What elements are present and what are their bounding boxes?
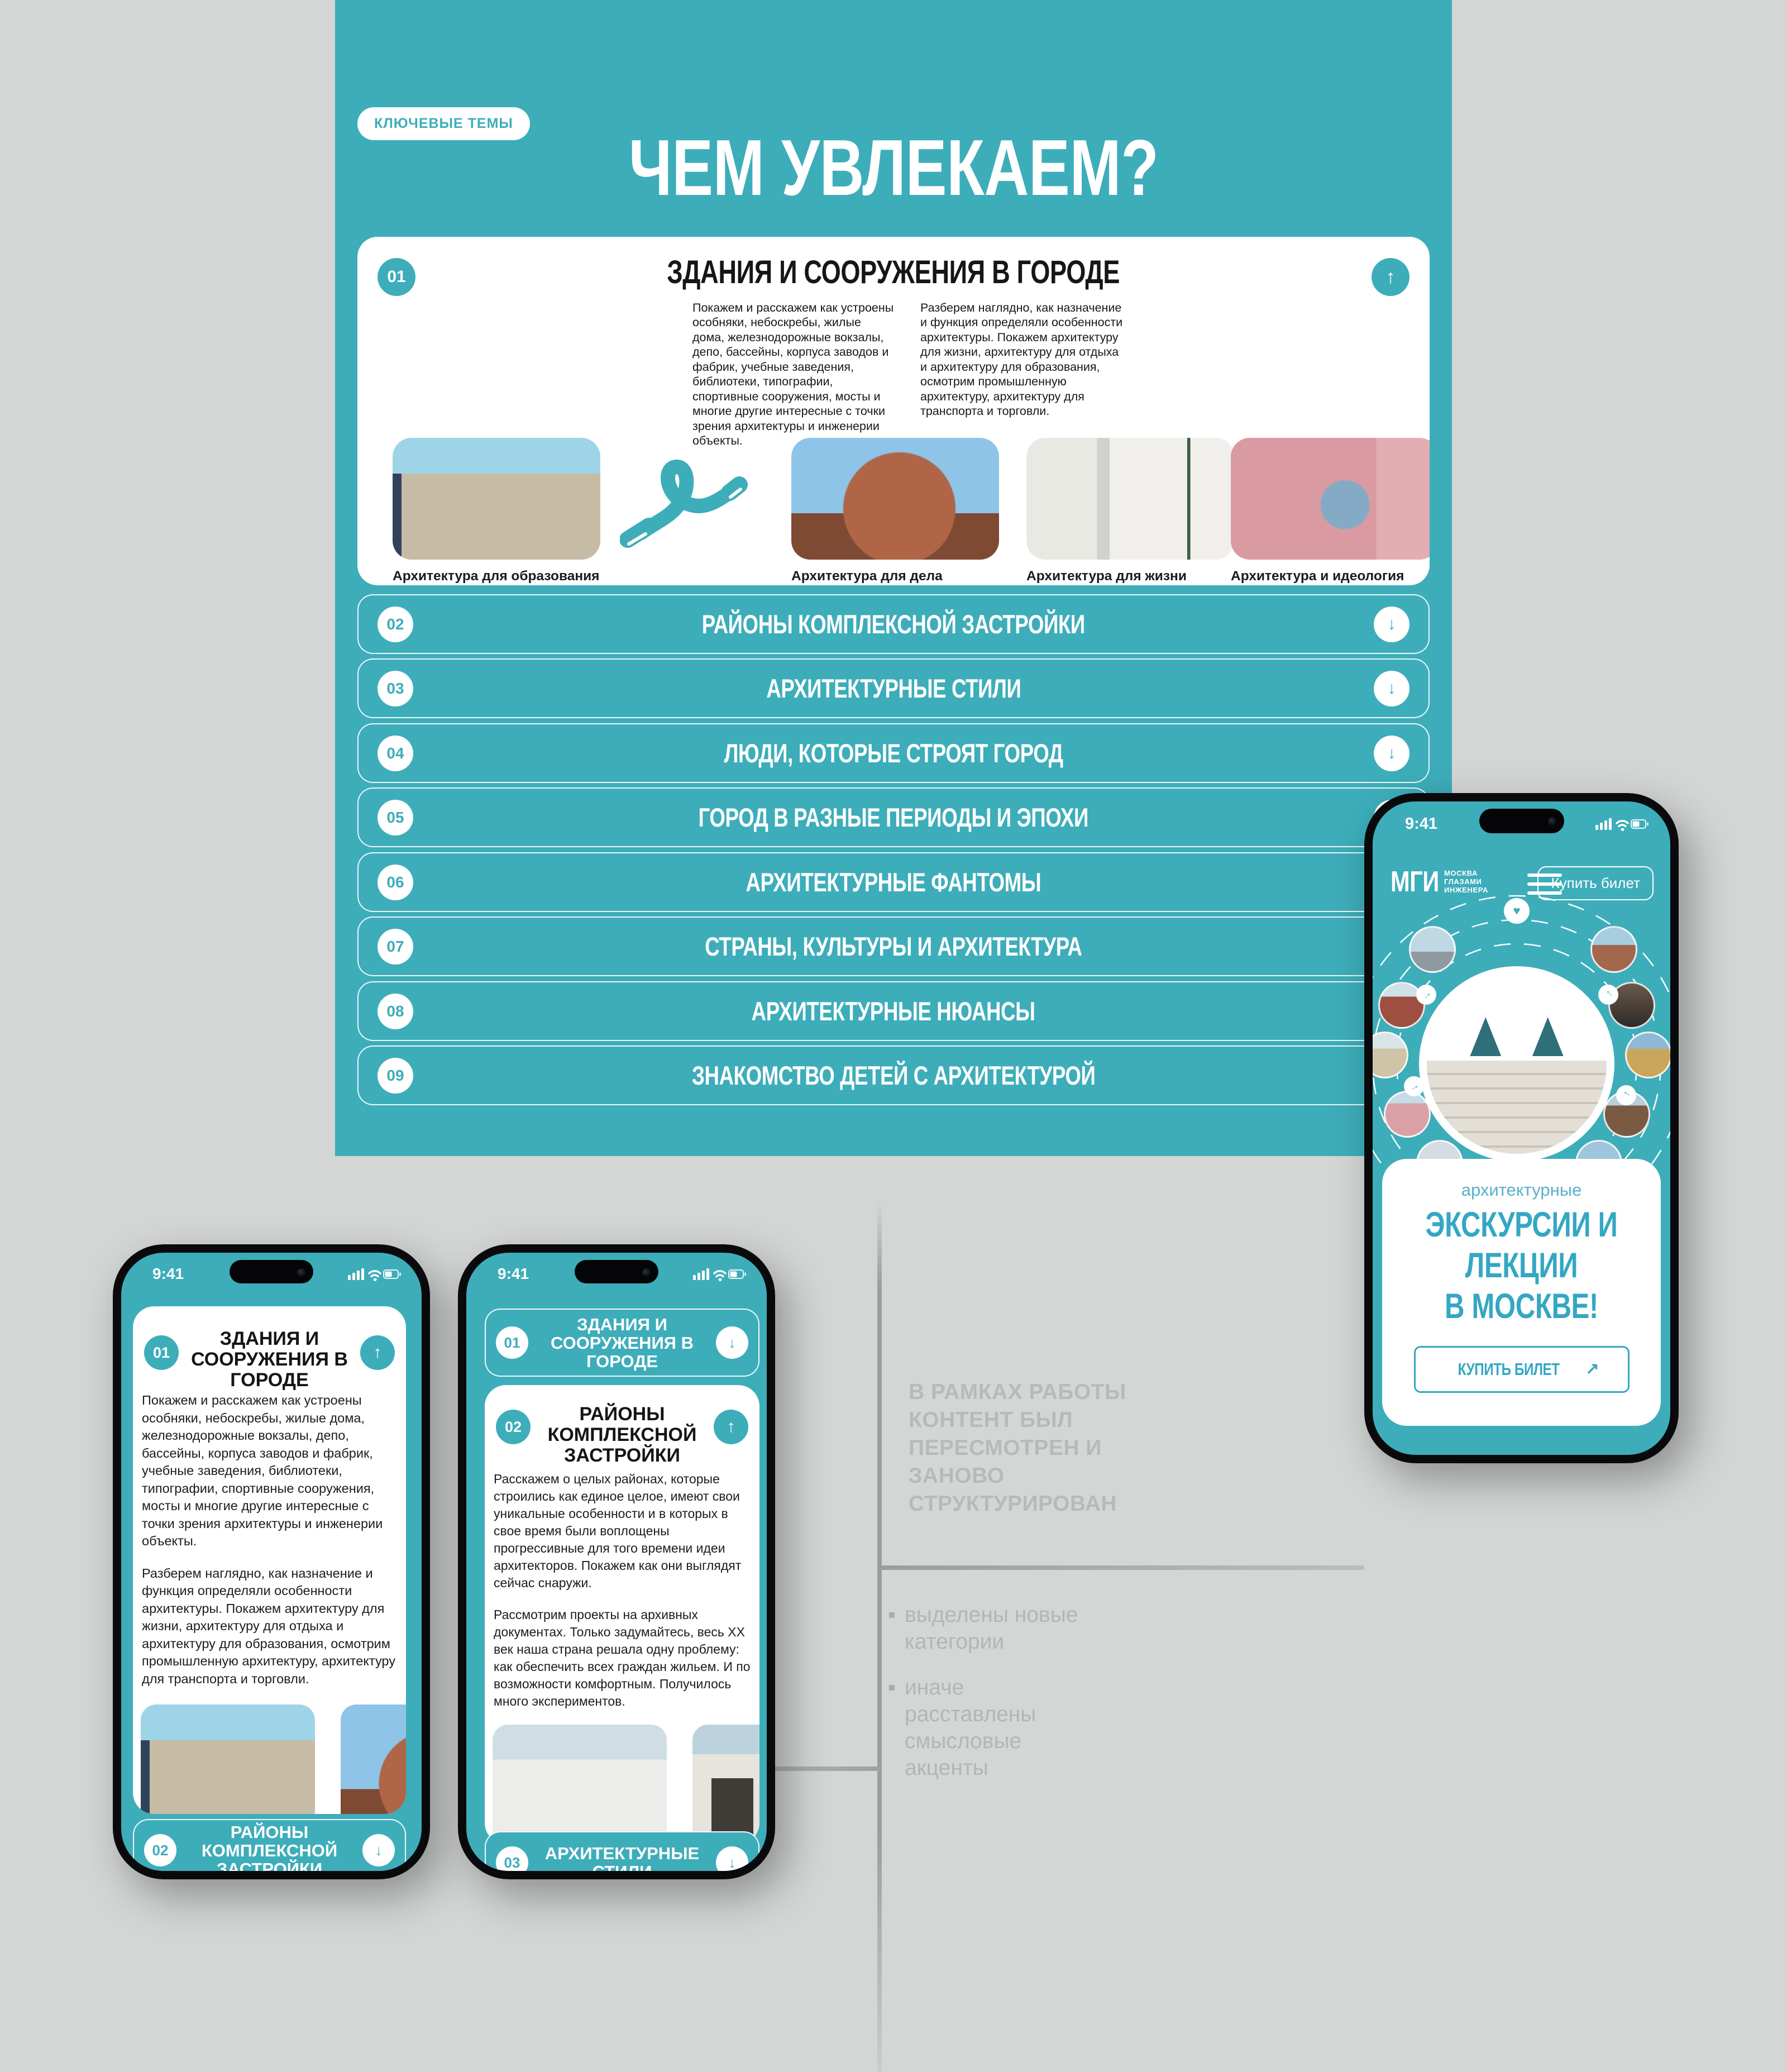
photo-card: Архитектура для дела ХЛЕБОЗАВОД №9: [791, 438, 999, 585]
row-title: ЛЮДИ, КОТОРЫЕ СТРОЯТ ГОРОД: [724, 738, 1063, 768]
hero-kicker: архитектурные: [1382, 1180, 1661, 1200]
lenin-library-photo: [393, 438, 600, 560]
bread-factory-photo: [341, 1705, 406, 1814]
camera-icon: [642, 1268, 651, 1277]
phone-screen: 9:41 01 ЗДАНИЯ И СООРУЖЕНИЯ В ГОРОДЕ ↑ П…: [121, 1253, 422, 1871]
row-number-badge: 08: [378, 994, 413, 1029]
row-title: ГОРОД В РАЗНЫЕ ПЕРИОДЫ И ЭПОХИ: [699, 802, 1088, 833]
row-number-badge: 07: [378, 929, 413, 965]
accordion-row-08[interactable]: 08 АРХИТЕКТУРНЫЕ НЮАНСЫ ↓: [357, 981, 1430, 1041]
annotation-bullet: иначе расставлены смысловые акценты: [889, 1674, 1124, 1782]
hero-card: архитектурные ЭКСКУРСИИ И ЛЕКЦИИ В МОСКВ…: [1382, 1159, 1661, 1426]
heart-pin-icon: ♥: [1504, 898, 1530, 924]
topic-number-badge: 02: [496, 1410, 531, 1444]
topic-paragraph: Расскажем о целых районах, которые строи…: [494, 1471, 751, 1592]
row-title: РАЙОНЫ КОМПЛЕКСНОЙ ЗАСТРОЙКИ: [702, 609, 1085, 639]
hero-headline: ЭКСКУРСИИ И ЛЕКЦИИ В МОСКВЕ!: [1382, 1205, 1661, 1327]
row-title: ЗНАКОМСТВО ДЕТЕЙ С АРХИТЕКТУРОЙ: [692, 1060, 1096, 1091]
key-topics-section: КЛЮЧЕВЫЕ ТЕМЫ ЧЕМ УВЛЕКАЕМ? Мы показывае…: [335, 0, 1452, 1156]
mobile-topic-card-01: 01 ЗДАНИЯ И СООРУЖЕНИЯ В ГОРОДЕ ↑ Покаже…: [133, 1306, 406, 1814]
connector-branch-left: [757, 1767, 882, 1771]
topic-card-01: 01 ЗДАНИЯ И СООРУЖЕНИЯ В ГОРОДЕ ↑ Покаже…: [357, 237, 1430, 585]
orbit-photo-yellow-house: [1625, 1032, 1670, 1078]
gum-building-photo: [1427, 974, 1607, 1154]
status-icons: [1595, 816, 1649, 832]
battery-icon: [384, 1270, 401, 1278]
zuev-club-photo: [1231, 438, 1430, 560]
row-number-badge: 01: [496, 1326, 528, 1359]
photo-row: Архитектура для образования БИБЛИОТЕКА И…: [141, 1705, 406, 1814]
topic-number-badge: 01: [144, 1335, 179, 1370]
photo-row: Рабочий поселок “Усачевка” м.СПОРТИВНАЯ …: [493, 1725, 759, 1844]
dynamic-island: [1479, 809, 1564, 833]
accordion-row-07[interactable]: 07 СТРАНЫ, КУЛЬТУРЫ И АРХИТЕКТУРА ↓: [357, 916, 1430, 976]
expand-arrow-icon[interactable]: ↓: [1374, 607, 1409, 642]
topic-photo-row: Архитектура для образования БИБЛИОТЕКА И…: [357, 429, 1430, 585]
topic-paragraph: Разберем наглядно, как назначение и функ…: [142, 1565, 397, 1688]
dynamic-island: [230, 1260, 313, 1283]
accordion-row-03-mobile[interactable]: 03 АРХИТЕКТУРНЫЕ СТИЛИ ↓: [485, 1831, 759, 1871]
collapse-arrow-button[interactable]: ↑: [714, 1410, 748, 1444]
photo-card: Архитектура и идеология ДОМ КУЛЬТУРЫ ИМ.…: [1231, 438, 1430, 585]
accordion-row-02-mobile[interactable]: 02 РАЙОНЫ КОМПЛЕКСНОЙ ЗАСТРОЙКИ ↓: [133, 1819, 406, 1871]
dangauerovka-photo: [692, 1725, 759, 1844]
mobile-topic-card-02: 02 РАЙОНЫ КОМПЛЕКСНОЙ ЗАСТРОЙКИ ↑ Расска…: [485, 1385, 759, 1844]
row-number-badge: 05: [378, 800, 413, 836]
hero-circle: [1419, 966, 1614, 1162]
connector-branch-right: [880, 1565, 1364, 1570]
photo-card: Рабочий поселок “Усачевка” м.СПОРТИВНАЯ: [493, 1725, 667, 1844]
camera-icon: [1548, 817, 1556, 825]
bread-factory-photo: [791, 438, 999, 560]
row-number-badge: 04: [378, 736, 413, 771]
accordion-row-05[interactable]: 05 ГОРОД В РАЗНЫЕ ПЕРИОДЫ И ЭПОХИ ↓: [357, 787, 1430, 847]
status-time: 9:41: [498, 1265, 529, 1283]
wifi-icon: [714, 1271, 725, 1280]
collapse-arrow-button[interactable]: ↑: [360, 1335, 395, 1370]
card-header: 01 ЗДАНИЯ И СООРУЖЕНИЯ В ГОРОДЕ ↑: [133, 1306, 406, 1391]
expand-arrow-icon[interactable]: ↓: [362, 1834, 395, 1866]
phone-mockup-topic01: 9:41 01 ЗДАНИЯ И СООРУЖЕНИЯ В ГОРОДЕ ↑ П…: [113, 1244, 430, 1879]
battery-icon: [1631, 820, 1649, 828]
signal-icon: [693, 1268, 709, 1280]
status-time: 9:41: [1405, 815, 1437, 833]
accordion-row-01-mobile[interactable]: 01 ЗДАНИЯ И СООРУЖЕНИЯ В ГОРОДЕ ↓: [485, 1309, 759, 1377]
accordion-row-06[interactable]: 06 АРХИТЕКТУРНЫЕ ФАНТОМЫ ↓: [357, 852, 1430, 912]
photo-caption: Архитектура для жизни: [1026, 569, 1234, 584]
arrow-ne-icon: ↗: [1585, 1360, 1599, 1379]
topic-text-col1: Покажем и расскажем как устроены особняк…: [692, 300, 896, 448]
annotation-bullets: выделены новые категории иначе расставле…: [889, 1602, 1124, 1801]
row-number-badge: 03: [378, 671, 413, 706]
orbit-photo-factory: [1409, 926, 1456, 973]
accordion-row-09[interactable]: 09 ЗНАКОМСТВО ДЕТЕЙ С АРХИТЕКТУРОЙ ↓: [357, 1045, 1430, 1105]
row-title: АРХИТЕКТУРНЫЕ СТИЛИ: [766, 673, 1021, 704]
signal-icon: [1595, 818, 1612, 830]
orbit-photo-pink-building: [1384, 1091, 1431, 1138]
phone-screen: 9:41 МГИ МОСКВА ГЛАЗАМИ ИНЖЕНЕРА Купить …: [1373, 801, 1670, 1455]
annotation-bullet: выделены новые категории: [889, 1602, 1124, 1655]
row-title: АРХИТЕКТУРНЫЕ ФАНТОМЫ: [746, 867, 1041, 897]
phone-mockup-home: 9:41 МГИ МОСКВА ГЛАЗАМИ ИНЖЕНЕРА Купить …: [1364, 793, 1679, 1463]
signal-icon: [348, 1268, 364, 1280]
row-title: СТРАНЫ, КУЛЬТУРЫ И АРХИТЕКТУРА: [705, 931, 1082, 962]
accordion-row-03[interactable]: 03 АРХИТЕКТУРНЫЕ СТИЛИ ↓: [357, 658, 1430, 718]
card-header: 02 РАЙОНЫ КОМПЛЕКСНОЙ ЗАСТРОЙКИ ↑: [485, 1385, 759, 1466]
accordion-row-04[interactable]: 04 ЛЮДИ, КОТОРЫЕ СТРОЯТ ГОРОД ↓: [357, 723, 1430, 783]
row-number-badge: 03: [496, 1846, 528, 1871]
row-title: АРХИТЕКТУРНЫЕ НЮАНСЫ: [752, 996, 1035, 1027]
photo-card: Архитектура для дела ХЛЕБОЗАВОД №9: [341, 1705, 406, 1814]
bullet-dot-icon: [889, 1612, 895, 1618]
topic-title: РАЙОНЫ КОМПЛЕКСНОЙ ЗАСТРОЙКИ: [535, 1404, 709, 1466]
row-number-badge: 06: [378, 865, 413, 900]
expand-arrow-icon[interactable]: ↓: [1374, 671, 1409, 706]
expand-arrow-icon[interactable]: ↓: [1374, 736, 1409, 771]
expand-arrow-icon[interactable]: ↓: [716, 1846, 748, 1871]
topic-paragraph: Рассмотрим проекты на архивных документа…: [494, 1606, 751, 1710]
row-number-badge: 02: [144, 1834, 176, 1866]
photo-card: Архитектура для образования БИБЛИОТЕКА И…: [393, 438, 600, 585]
phone-screen: 9:41 01 ЗДАНИЯ И СООРУЖЕНИЯ В ГОРОДЕ ↓ 0…: [466, 1253, 767, 1871]
collapse-arrow-button[interactable]: ↑: [1372, 258, 1409, 296]
lenin-library-photo: [141, 1705, 315, 1814]
expand-arrow-icon[interactable]: ↓: [716, 1326, 748, 1359]
phone-mockup-topic02: 9:41 01 ЗДАНИЯ И СООРУЖЕНИЯ В ГОРОДЕ ↓ 0…: [458, 1244, 775, 1879]
photo-caption: Архитектура для образования: [393, 569, 600, 584]
bullet-dot-icon: [889, 1685, 895, 1691]
connector-trunk-line: [877, 1201, 882, 2072]
orbit-photo-brick-towers: [1590, 926, 1637, 973]
photo-card: Архитектура для жизни РАЙОН ДАНГАУЭРОВКА: [1026, 438, 1234, 585]
photo-card: Архитектура для образования БИБЛИОТЕКА И…: [141, 1705, 315, 1814]
row-number-badge: 09: [378, 1058, 413, 1094]
topic-paragraph: Покажем и расскажем как устроены особняк…: [142, 1392, 397, 1550]
status-icons: [348, 1266, 402, 1282]
photo-caption: Архитектура для дела: [791, 569, 999, 584]
row-title: АРХИТЕКТУРНЫЕ СТИЛИ: [545, 1844, 699, 1871]
dynamic-island: [575, 1260, 658, 1283]
usachevka-photo: [493, 1725, 667, 1844]
topic-title: ЗДАНИЯ И СООРУЖЕНИЯ В ГОРОДЕ: [357, 254, 1430, 291]
page-title: ЧЕМ УВЛЕКАЕМ?: [335, 125, 1452, 212]
photo-caption: Архитектура и идеология: [1231, 569, 1430, 584]
row-title: ЗДАНИЯ И СООРУЖЕНИЯ В ГОРОДЕ: [551, 1315, 694, 1371]
status-time: 9:41: [152, 1265, 184, 1283]
topic-title: ЗДАНИЯ И СООРУЖЕНИЯ В ГОРОДЕ: [183, 1329, 356, 1391]
buy-ticket-cta-button[interactable]: КУПИТЬ БИЛЕТ ↗: [1414, 1346, 1630, 1393]
row-number-badge: 02: [378, 607, 413, 642]
dangauerovka-photo: [1026, 438, 1234, 560]
status-icons: [693, 1266, 747, 1282]
camera-icon: [297, 1268, 305, 1277]
accordion-row-02[interactable]: 02 РАЙОНЫ КОМПЛЕКСНОЙ ЗАСТРОЙКИ ↓: [357, 594, 1430, 654]
topic-text-col2: Разберем наглядно, как назначение и функ…: [920, 300, 1127, 419]
wifi-icon: [1617, 821, 1628, 830]
photo-card: Район “Дангауэровка” м.АВИАМОТОРНАЯ: [692, 1725, 759, 1844]
presentation-canvas: КЛЮЧЕВЫЕ ТЕМЫ ЧЕМ УВЛЕКАЕМ? Мы показывае…: [0, 0, 1787, 2072]
row-title: РАЙОНЫ КОМПЛЕКСНОЙ ЗАСТРОЙКИ: [202, 1823, 337, 1872]
annotation-heading: В РАМКАХ РАБОТЫ КОНТЕНТ БЫЛ ПЕРЕСМОТРЕН …: [909, 1378, 1143, 1518]
battery-icon: [729, 1270, 746, 1278]
wifi-icon: [369, 1271, 380, 1280]
